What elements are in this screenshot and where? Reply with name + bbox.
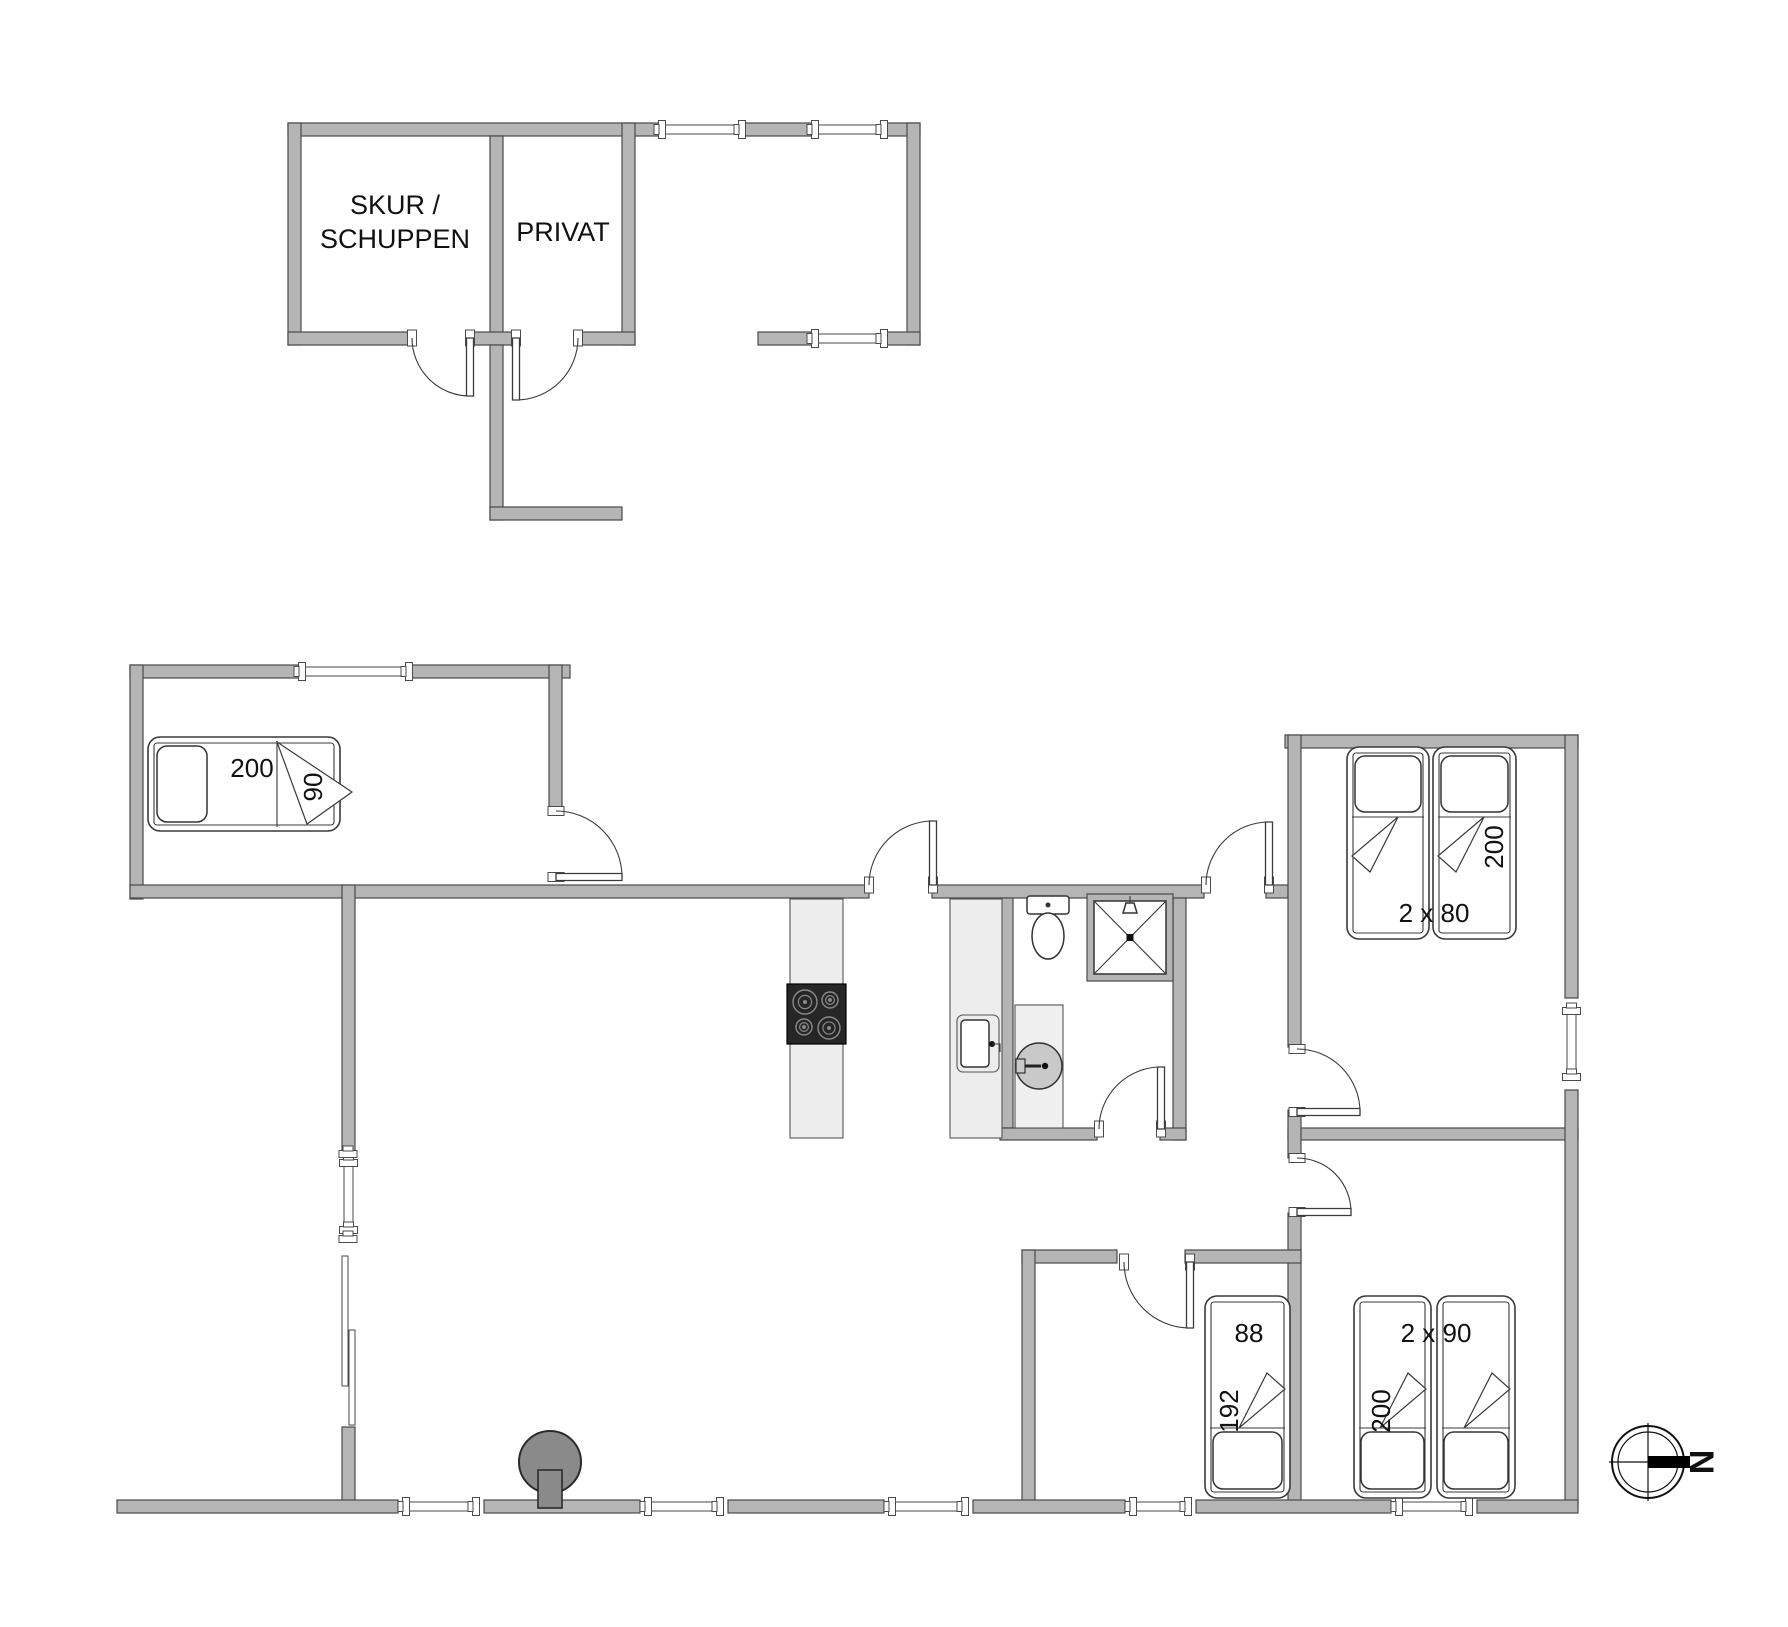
ne-bedroom-door-leaf xyxy=(1297,1109,1360,1116)
private-door-swing-arc xyxy=(516,338,578,400)
south-window-3-connector xyxy=(962,1498,969,1516)
entry-door-leaf xyxy=(930,821,937,885)
south-wall-1 xyxy=(117,1500,398,1513)
nw-bedroom-right-wall xyxy=(549,665,562,808)
shed-label-1: SKUR / xyxy=(350,190,441,220)
nw-bed-width-label: 90 xyxy=(298,773,328,802)
nw-bedroom-door-leaf xyxy=(556,874,622,881)
patio-sliding-door-panel-1 xyxy=(342,1256,348,1386)
east-wall-1 xyxy=(1565,735,1578,998)
outbuilding-left-wall xyxy=(288,123,301,345)
carport-window-1-connector-nub xyxy=(734,125,739,135)
south-window-2 xyxy=(648,1502,720,1511)
south-wall-6 xyxy=(1477,1500,1578,1513)
carport-window-3-connector xyxy=(881,330,888,348)
compass-north-label: N xyxy=(1682,1450,1720,1475)
wood-stove-flue xyxy=(538,1470,562,1508)
south-window-1-connector xyxy=(473,1498,480,1516)
hall-entry-door-swing-arc xyxy=(1206,822,1269,885)
bed-se-twin-1-pillow xyxy=(1361,1432,1424,1489)
ne-bed-length-label: 200 xyxy=(1479,825,1509,868)
bed-sw-single-pillow xyxy=(1213,1432,1282,1489)
south-window-2-connector xyxy=(645,1498,652,1516)
basin-drain-dot xyxy=(1042,1063,1048,1069)
south-window-5 xyxy=(1399,1502,1469,1511)
nw-bedroom-door-swing-arc xyxy=(556,811,622,877)
south-window-4-connector-nub xyxy=(1180,1502,1185,1512)
south-window-1-connector-nub xyxy=(398,1502,403,1512)
shed-private-divider-wall xyxy=(490,136,503,345)
patio-sliding-door-panel-2 xyxy=(349,1330,355,1425)
south-window-5-connector xyxy=(1466,1498,1473,1516)
ne-bedroom-door-swing-arc xyxy=(1297,1049,1360,1112)
outbuilding-bottom-wall-1 xyxy=(288,332,412,345)
carport-window-1-connector xyxy=(659,121,666,139)
floor-plan-canvas: NSKUR /SCHUPPENPRIVAT200902002 x 8088192… xyxy=(0,0,1788,1627)
outbuilding-top-wall-2 xyxy=(742,123,815,136)
west-window xyxy=(344,1163,353,1230)
south-window-5-connector xyxy=(1396,1498,1403,1516)
entry-door-swing-arc xyxy=(869,821,933,885)
south-window-1-connector-nub xyxy=(468,1502,473,1512)
east-window-connector xyxy=(1563,1074,1581,1081)
south-window-5-connector-nub xyxy=(1461,1502,1466,1512)
south-window-1-connector xyxy=(403,1498,410,1516)
ne-bedroom-top-wall xyxy=(1285,735,1578,748)
hall-south-wall-1 xyxy=(1022,1250,1117,1263)
shower-head-icon xyxy=(1123,903,1137,913)
private-label: PRIVAT xyxy=(516,217,610,247)
south-window-4-connector-nub xyxy=(1125,1502,1130,1512)
nw-bedroom-window-connector-nub xyxy=(294,667,299,677)
south-window-1 xyxy=(406,1502,476,1511)
shed-door-swing-arc xyxy=(412,338,470,396)
se-bedroom-door-swing-arc xyxy=(1297,1158,1351,1212)
west-window-connector-nub xyxy=(344,1222,354,1227)
burner-center xyxy=(827,1026,831,1030)
hall-entry-door-leaf xyxy=(1266,822,1273,885)
burner-center xyxy=(802,1025,806,1029)
carport-window-3-connector-nub xyxy=(807,334,812,344)
patio-sliding-door-connector xyxy=(339,1236,357,1243)
shed-label-2: SCHUPPEN xyxy=(320,224,470,254)
east-window-connector-nub xyxy=(1567,1069,1577,1074)
patio-sliding-door-connector-nub xyxy=(343,1231,353,1236)
south-wall-4 xyxy=(973,1500,1125,1513)
patio-sliding-door-connector-nub xyxy=(343,1146,353,1151)
bathroom-door-swing-arc xyxy=(1099,1067,1161,1129)
shed-door-leaf xyxy=(467,338,474,396)
south-window-3-connector xyxy=(889,1498,896,1516)
south-window-4-connector xyxy=(1130,1498,1137,1516)
bath-south-wall-1 xyxy=(1000,1128,1097,1140)
ne-bed-width-label: 2 x 80 xyxy=(1399,898,1470,928)
bedrooms-divider-wall-1 xyxy=(1288,735,1301,1047)
nw-bedroom-top-wall-2 xyxy=(409,665,570,678)
hall-south-wall-2 xyxy=(1185,1250,1301,1263)
carport-window-1-connector-nub xyxy=(654,125,659,135)
carport-window-1 xyxy=(662,125,742,134)
carport-window-3-connector-nub xyxy=(876,334,881,344)
bed-ne-twin-1-pillow xyxy=(1355,756,1421,812)
nw-bedroom-window-connector-nub xyxy=(401,667,406,677)
outbuilding-top-wall-1 xyxy=(288,123,662,136)
east-window-connector xyxy=(1563,1008,1581,1015)
carport-right-wall xyxy=(907,123,920,345)
west-window-connector xyxy=(340,1160,358,1167)
nw-bedroom-window-connector xyxy=(299,663,306,681)
se-bed-length-label: 200 xyxy=(1366,1389,1396,1432)
sw-bedroom-door-leaf xyxy=(1187,1262,1194,1328)
south-window-2-connector-nub xyxy=(712,1502,717,1512)
west-wall-2 xyxy=(342,1427,355,1506)
shower-drain xyxy=(1127,934,1134,941)
nw-bedroom-window xyxy=(302,667,409,676)
kitchen-sink-basin xyxy=(961,1020,989,1067)
nw-bedroom-left-wall xyxy=(130,665,143,899)
outbuilding-bottom-wall-3 xyxy=(577,332,635,345)
south-window-3-connector-nub xyxy=(957,1502,962,1512)
outbuilding-bottom-wall-2 xyxy=(468,332,515,345)
east-window xyxy=(1567,1011,1576,1077)
se-bed-width-label: 2 x 90 xyxy=(1401,1318,1472,1348)
basin-faucet-base xyxy=(1016,1059,1025,1073)
north-wall-1 xyxy=(130,885,869,898)
carport-window-2 xyxy=(815,125,884,134)
carport-window-3 xyxy=(815,334,884,343)
bathroom-door-leaf xyxy=(1158,1067,1165,1129)
patio-sliding-door-connector xyxy=(339,1151,357,1158)
carport-bottom-wall xyxy=(758,332,815,345)
carport-window-1-connector xyxy=(739,121,746,139)
carport-window-3-connector xyxy=(812,330,819,348)
south-window-2-connector-nub xyxy=(640,1502,645,1512)
floor-plan-drawing: NSKUR /SCHUPPENPRIVAT200902002 x 8088192… xyxy=(0,0,1788,1627)
bedrooms-divider-wall-2 xyxy=(1288,1110,1301,1158)
east-wall-2 xyxy=(1565,1090,1578,1506)
carport-window-2-connector xyxy=(881,121,888,139)
bed-se-twin-2-pillow xyxy=(1444,1432,1508,1489)
east-window-connector-nub xyxy=(1567,1003,1577,1008)
south-wall-5 xyxy=(1196,1500,1391,1513)
ne-bedroom-south-wall xyxy=(1288,1128,1578,1140)
nw-bedroom-top-wall-1 xyxy=(130,665,302,678)
sw-bedroom-left-wall xyxy=(1022,1250,1035,1506)
bed-ne-twin-2-pillow xyxy=(1441,756,1508,812)
bath-east-wall xyxy=(1173,898,1186,1140)
carport-window-2-connector-nub xyxy=(876,125,881,135)
south-window-3 xyxy=(892,1502,965,1511)
toilet-button xyxy=(1046,903,1051,908)
south-window-2-connector xyxy=(717,1498,724,1516)
burner-center xyxy=(803,1000,807,1004)
se-bedroom-door-leaf xyxy=(1297,1209,1351,1216)
private-door-leaf xyxy=(513,338,520,400)
carport-window-2-connector xyxy=(812,121,819,139)
toilet-bowl-icon xyxy=(1032,913,1064,959)
private-right-wall xyxy=(622,123,635,345)
sw-bed-width-label: 88 xyxy=(1235,1318,1264,1348)
sw-bed-length-label: 192 xyxy=(1214,1389,1244,1432)
burner-center xyxy=(828,998,832,1002)
south-window-4-connector xyxy=(1185,1498,1192,1516)
nw-bedroom-window-connector xyxy=(406,663,413,681)
south-wall-3 xyxy=(728,1500,884,1513)
entry-spur-wall-vertical xyxy=(490,345,503,520)
nw-bed-length-label: 200 xyxy=(230,753,273,783)
west-wall-1 xyxy=(342,885,355,1152)
south-window-3-connector-nub xyxy=(884,1502,889,1512)
carport-window-2-connector-nub xyxy=(807,125,812,135)
south-window-5-connector-nub xyxy=(1391,1502,1396,1512)
carport-bottom-corner xyxy=(884,332,920,345)
bed-nw-single-pillow xyxy=(157,746,207,822)
entry-spur-wall-horizontal xyxy=(490,507,622,520)
sw-bedroom-door-swing-arc xyxy=(1124,1262,1190,1328)
